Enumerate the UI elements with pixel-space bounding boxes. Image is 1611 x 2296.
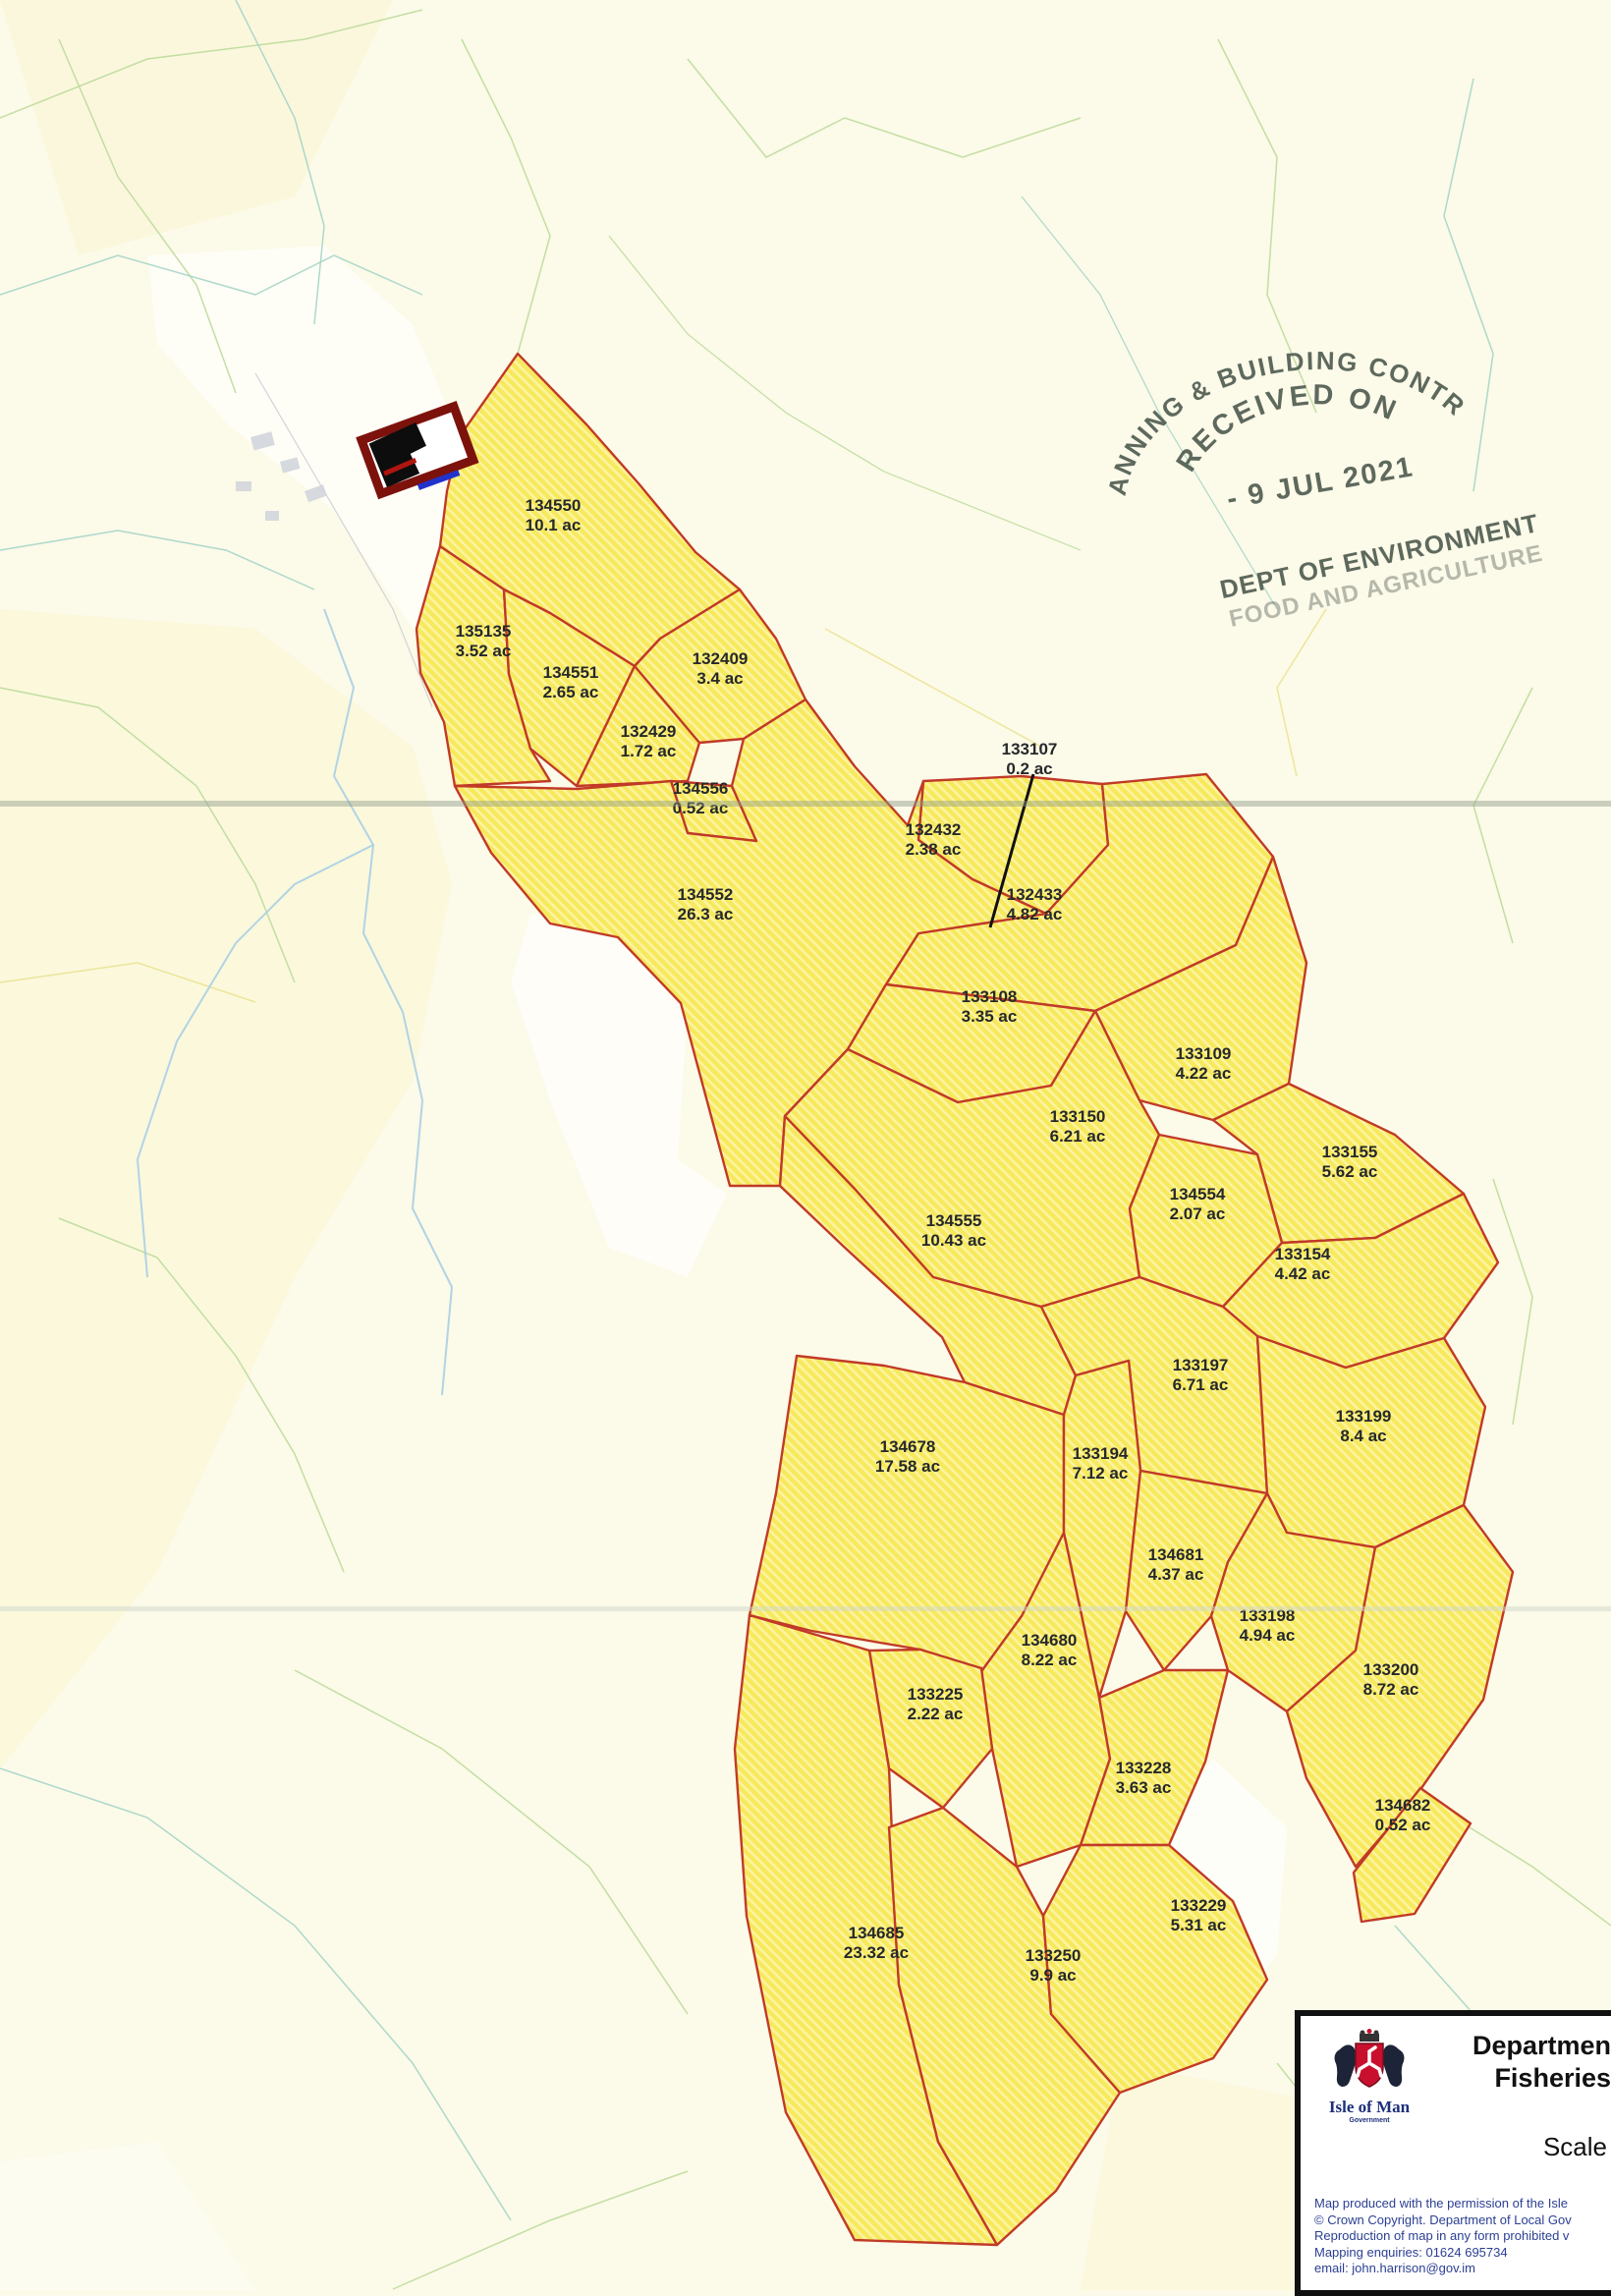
scan-artifact-line xyxy=(0,1606,1611,1611)
parcel-label-133154: 1331544.42 ac xyxy=(1275,1245,1331,1283)
parcel-label-134681: 1346814.37 ac xyxy=(1148,1545,1204,1584)
parcel-label-133229: 1332295.31 ac xyxy=(1171,1896,1227,1934)
map-canvas: 13455010.1 ac1351353.52 ac1345512.65 ac1… xyxy=(0,0,1611,2290)
parcel-label-133199: 1331998.4 ac xyxy=(1336,1407,1392,1445)
field-boundary-line xyxy=(1454,1818,1611,1926)
parcel-label-133250: 1332509.9 ac xyxy=(1026,1946,1082,1985)
terrain-tint xyxy=(0,0,393,255)
field-boundary-line xyxy=(1473,688,1532,943)
river-valley-patch xyxy=(0,2142,255,2290)
parcel-label-133150: 1331506.21 ac xyxy=(1050,1107,1106,1146)
legend-note-line: Reproduction of map in any form prohibit… xyxy=(1314,2228,1572,2245)
terrain-tint xyxy=(0,609,452,1768)
legend-title-line2: Fisheries xyxy=(1472,2062,1611,2095)
parcel-label-133109: 1331094.22 ac xyxy=(1176,1044,1232,1083)
legend-title: Departmen Fisheries xyxy=(1472,2030,1611,2095)
field-boundary-line xyxy=(393,2171,688,2289)
legend-note-line: email: john.harrison@gov.im xyxy=(1314,2261,1572,2277)
parcel-label-134556: 1345560.52 ac xyxy=(673,779,729,817)
legend-note-line: Map produced with the permission of the … xyxy=(1314,2196,1572,2212)
parcel-label-133200: 1332008.72 ac xyxy=(1363,1660,1419,1699)
parcel-label-132429: 1324291.72 ac xyxy=(621,722,677,760)
field-boundary-line xyxy=(609,236,1081,550)
legend-note-line: © Crown Copyright. Department of Local G… xyxy=(1314,2212,1572,2229)
parcel-label-135135: 1351353.52 ac xyxy=(456,622,512,660)
parcel-label-134555: 13455510.43 ac xyxy=(921,1211,986,1250)
legend-note-line: Mapping enquiries: 01624 695734 xyxy=(1314,2245,1572,2262)
parcel-label-134685: 13468523.32 ac xyxy=(844,1924,909,1962)
isle-of-man-government-logo: Isle of Man Government xyxy=(1310,2028,1428,2131)
parcel-layer: 13455010.1 ac1351353.52 ac1345512.65 ac1… xyxy=(417,354,1513,2245)
field-boundary-line xyxy=(0,531,314,589)
received-stamp: PLANNING & BUILDING CONTROL RECEIVED ON … xyxy=(1089,323,1549,644)
parcel-label-134551: 1345512.65 ac xyxy=(543,663,599,701)
parcel-label-134678: 13467817.58 ac xyxy=(875,1437,940,1476)
village-building xyxy=(236,481,251,491)
parcel-label-132433: 1324334.82 ac xyxy=(1007,885,1063,924)
legend-title-line1: Departmen xyxy=(1472,2030,1611,2062)
planning-map-page: { "stamp": { "arc_top": "PLANNING & BUIL… xyxy=(0,0,1611,2290)
field-boundary-line xyxy=(1493,1179,1532,1425)
parcel-label-133197: 1331976.71 ac xyxy=(1173,1356,1229,1394)
parcel-label-133107: 1331070.2 ac xyxy=(1002,740,1058,778)
parcel-label-134680: 1346808.22 ac xyxy=(1022,1631,1078,1669)
parcel-label-132409: 1324093.4 ac xyxy=(693,649,749,688)
parcel-label-133228: 1332283.63 ac xyxy=(1116,1759,1172,1797)
legend-box: Isle of Man Government Departmen Fisheri… xyxy=(1295,2010,1611,2296)
parcel-label-134682: 1346820.52 ac xyxy=(1375,1796,1431,1834)
field-boundary-line xyxy=(1444,79,1493,491)
parcel-label-134552: 13455226.3 ac xyxy=(678,885,734,924)
field-boundary-line xyxy=(1277,609,1326,776)
parcel-label-133194: 1331947.12 ac xyxy=(1073,1444,1129,1483)
scan-artifact-line xyxy=(0,801,1611,807)
logo-org-sub: Government xyxy=(1349,2117,1390,2124)
stamp-date: - 9 JUL 2021 xyxy=(1224,451,1416,515)
field-boundary-line xyxy=(688,59,1081,157)
parcel-label-134554: 1345542.07 ac xyxy=(1170,1185,1226,1223)
parcel-label-133155: 1331555.62 ac xyxy=(1322,1143,1378,1181)
parcel-label-133198: 1331984.94 ac xyxy=(1240,1606,1296,1645)
logo-org-name: Isle of Man xyxy=(1329,2098,1411,2116)
village-building xyxy=(265,511,279,521)
parcel-label-132432: 1324322.38 ac xyxy=(906,820,962,859)
parcel-label-133108: 1331083.35 ac xyxy=(962,987,1018,1026)
field-boundary-line xyxy=(295,1670,688,2014)
field-boundary-line xyxy=(825,629,1041,747)
legend-copyright-notes: Map produced with the permission of the … xyxy=(1314,2196,1572,2277)
parcel-label-134550: 13455010.1 ac xyxy=(526,496,582,534)
field-boundary-line xyxy=(462,39,550,354)
parcel-label-133225: 1332252.22 ac xyxy=(908,1685,964,1723)
legend-scale-label: Scale xyxy=(1543,2132,1607,2162)
